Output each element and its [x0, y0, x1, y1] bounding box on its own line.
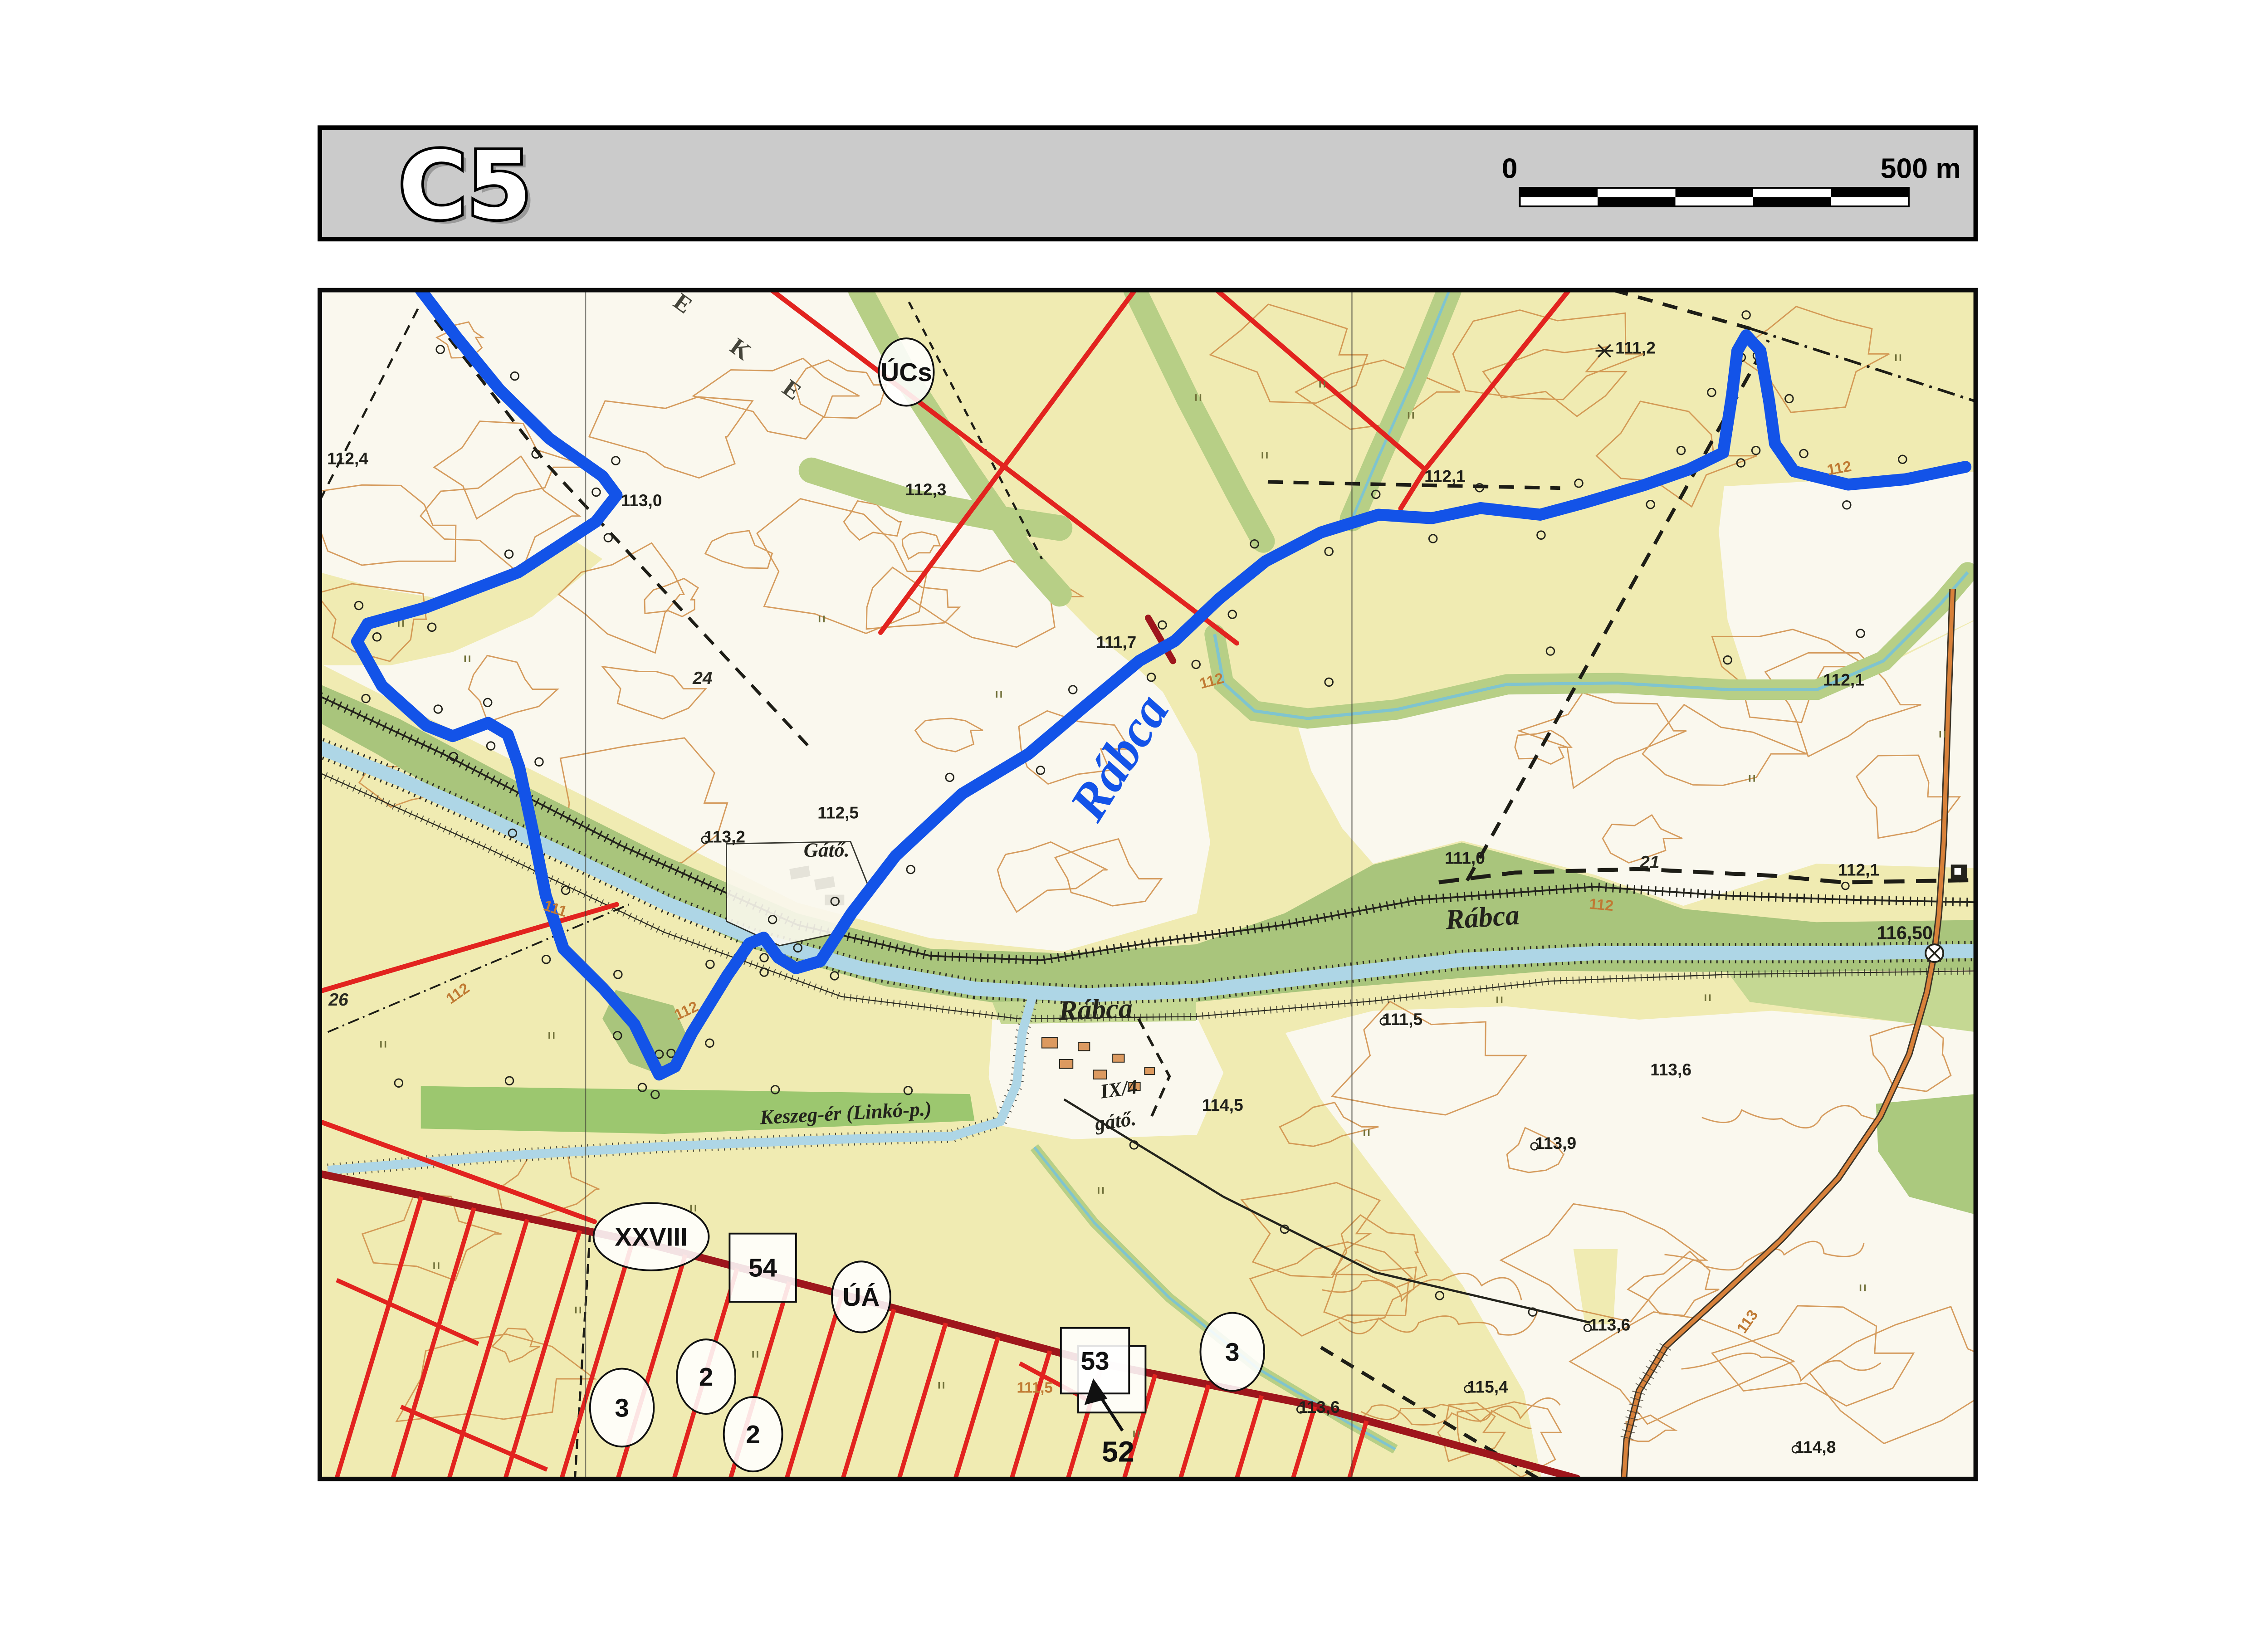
- map-label: 26: [328, 990, 348, 1010]
- sheet-label: C5: [399, 132, 532, 240]
- badge-label: 2: [746, 1421, 760, 1449]
- map-label: 113,0: [621, 491, 662, 510]
- header-box: [320, 127, 1975, 239]
- scale-bar-segments: [1520, 188, 1909, 206]
- map-label: Rábca: [1058, 992, 1134, 1026]
- badge-label: 53: [1081, 1347, 1110, 1376]
- map-canvas: 112,4113,0112,3111,2112,1111,7112,5113,2…: [313, 288, 2023, 1479]
- map-label: 112,1: [1838, 860, 1879, 879]
- annotation-label: 52: [1102, 1436, 1134, 1468]
- bridge-icon: [1926, 944, 1943, 962]
- map-label: 112: [1589, 896, 1614, 915]
- badge-label: 3: [615, 1394, 629, 1422]
- scale-start-label: 0: [1502, 153, 1518, 185]
- badge-label: XXVIII: [615, 1223, 688, 1251]
- map-label: 114,8: [1795, 1437, 1836, 1456]
- map-label: 111,5: [1382, 1010, 1422, 1029]
- map-label: 112,1: [1424, 467, 1466, 486]
- map-label: 112,5: [817, 803, 859, 822]
- map-label: 116,50: [1877, 922, 1933, 943]
- building-orange: [1093, 1070, 1106, 1079]
- building-orange: [1078, 1043, 1090, 1051]
- header-bar: C5 C5 0 500 m: [320, 127, 1975, 244]
- map-label: 112,3: [905, 480, 947, 499]
- badge-label: ÚÁ: [843, 1283, 880, 1312]
- map-label: 112,1: [1823, 670, 1864, 689]
- building-edge-court: [1955, 868, 1961, 875]
- badge-label: 3: [1225, 1338, 1240, 1367]
- map-label: 111,7: [1096, 633, 1137, 652]
- building-orange: [1144, 1068, 1154, 1075]
- map-label: 115,4: [1467, 1377, 1508, 1396]
- map-label: 111,2: [1615, 338, 1656, 357]
- building-orange: [1042, 1037, 1058, 1048]
- map-label: Rábca: [1444, 899, 1520, 935]
- map-label: 21: [1639, 853, 1659, 872]
- map-label: Gátő.: [804, 839, 850, 861]
- map-label: 111,0: [1445, 848, 1485, 867]
- map-label: 112,4: [327, 449, 368, 468]
- building-orange: [1113, 1054, 1124, 1062]
- map-label: 113,6: [1650, 1060, 1691, 1079]
- map-label: 113,6: [1299, 1397, 1340, 1416]
- map-label: 114,5: [1202, 1095, 1243, 1114]
- map-label: 113,2: [704, 827, 745, 846]
- badge-label: 54: [748, 1254, 777, 1283]
- map-sheet-figure: C5 C5 0 500 m 112,4113,0112,3111,2112,11…: [0, 0, 2268, 1602]
- scale-end-label: 500 m: [1881, 153, 1961, 185]
- badge-label: ÚCs: [880, 358, 932, 387]
- map-label: 111,5: [1017, 1379, 1053, 1396]
- badge-label: 2: [699, 1363, 713, 1392]
- map-label: 113,9: [1535, 1133, 1576, 1153]
- map-label: 113,6: [1589, 1315, 1630, 1334]
- map-label: 24: [692, 669, 713, 688]
- building-orange: [1060, 1060, 1073, 1069]
